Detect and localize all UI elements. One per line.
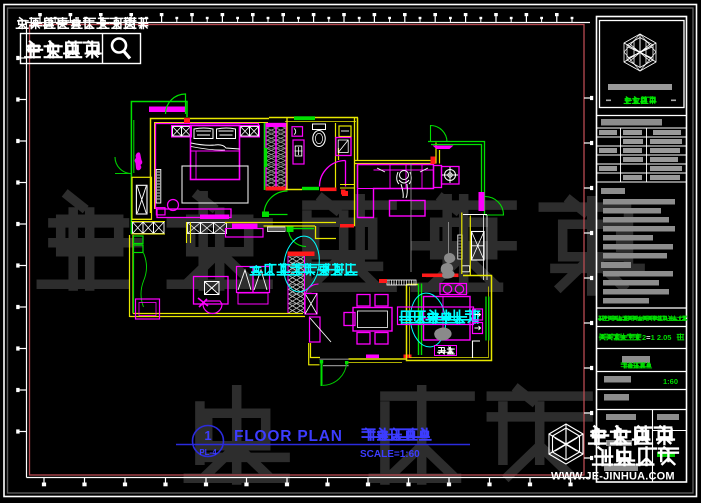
svg-text:SCALE=1:60: SCALE=1:60 <box>360 449 420 460</box>
svg-text:WWW.JE-JINHUA.COM: WWW.JE-JINHUA.COM <box>551 471 675 483</box>
svg-text:PL-4: PL-4 <box>199 448 217 457</box>
svg-text:FLOOR PLAN: FLOOR PLAN <box>234 428 343 445</box>
svg-text:1: 1 <box>204 428 211 443</box>
svg-text:1:60: 1:60 <box>663 377 678 386</box>
svg-text:2=1 2.05: 2=1 2.05 <box>642 333 671 342</box>
